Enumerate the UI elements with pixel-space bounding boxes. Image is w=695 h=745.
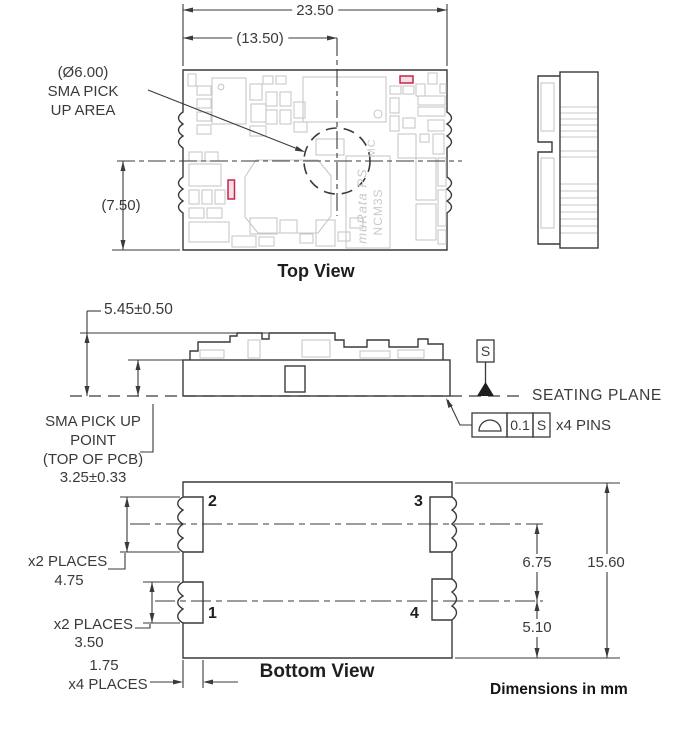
fcf-datum: S — [533, 413, 550, 437]
dim-pin-offset: 5.10 — [518, 619, 555, 637]
pcb-model2-marking: MC — [366, 138, 378, 157]
pin-label-3: 3 — [414, 492, 423, 511]
highlight-rect — [228, 180, 235, 199]
top-view-title: Top View — [277, 261, 354, 283]
datum-label: S — [477, 340, 494, 362]
dim-pin-pitch: 6.75 — [518, 554, 555, 572]
sma-area-label: (Ø6.00) SMA PICK UP AREA — [22, 64, 144, 120]
pin-label-2: 2 — [208, 492, 217, 511]
mechanical-drawing: 23.50 (13.50) (Ø6.00) SMA PICK UP AREA (… — [0, 0, 695, 745]
highlight-rect — [400, 76, 413, 83]
module-base — [183, 360, 450, 396]
bottom-view-drawing — [108, 482, 620, 688]
dim-pin-width-places: x4 PLACES — [58, 676, 158, 694]
dim-overall-width: 23.50 — [292, 2, 338, 20]
sma-point-label: SMA PICK UP POINT (TOP OF PCB) 3.25±0.33 — [18, 413, 168, 488]
component-silhouette — [190, 333, 443, 360]
dim-pin-lower: 3.50 — [60, 634, 118, 652]
fcf-tolerance: 0.1 — [507, 413, 533, 437]
fcf-note: x4 PINS — [556, 413, 611, 437]
profile-of-surface-icon — [479, 420, 501, 431]
dim-length: 15.60 — [583, 554, 629, 572]
units-note: Dimensions in mm — [490, 681, 628, 700]
seating-plane-label: SEATING PLANE — [532, 387, 662, 406]
pcb-brand-marking: muRata PS — [355, 168, 370, 243]
dim-pin-upper: 4.75 — [38, 572, 100, 590]
pin-label-1: 1 — [208, 604, 217, 623]
dim-sma-offset: (13.50) — [232, 30, 288, 48]
dim-pin-lower-places: x2 PLACES — [52, 616, 133, 634]
dim-pin-upper-places: x2 PLACES — [28, 553, 106, 571]
end-view-drawing — [538, 72, 598, 248]
pcb-model-marking: NCM3S — [371, 188, 385, 235]
dim-center-height: (7.50) — [96, 197, 146, 215]
pin-label-4: 4 — [410, 604, 419, 623]
dim-height: 5.45±0.50 — [104, 301, 173, 320]
datum-triangle-icon — [477, 382, 494, 396]
dim-pin-width: 1.75 — [70, 657, 138, 675]
bottom-view-title: Bottom View — [260, 661, 375, 684]
